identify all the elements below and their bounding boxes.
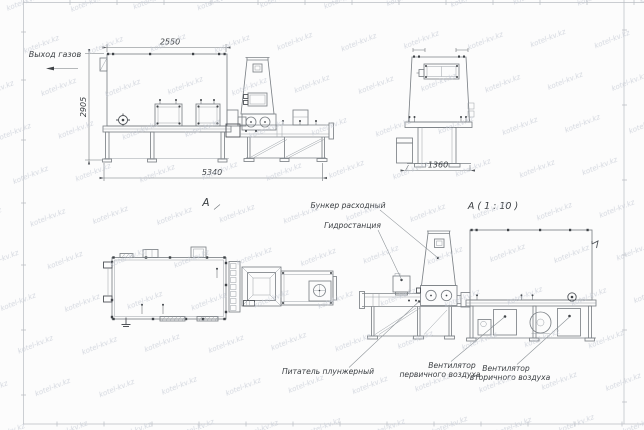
- drawing-sheet: kotel-kv.kz kotel-kv.kz 2550 2905: [0, 0, 644, 430]
- technical-drawing: kotel-kv.kz kotel-kv.kz 2550 2905: [0, 0, 644, 430]
- watermark-layer: [0, 0, 644, 430]
